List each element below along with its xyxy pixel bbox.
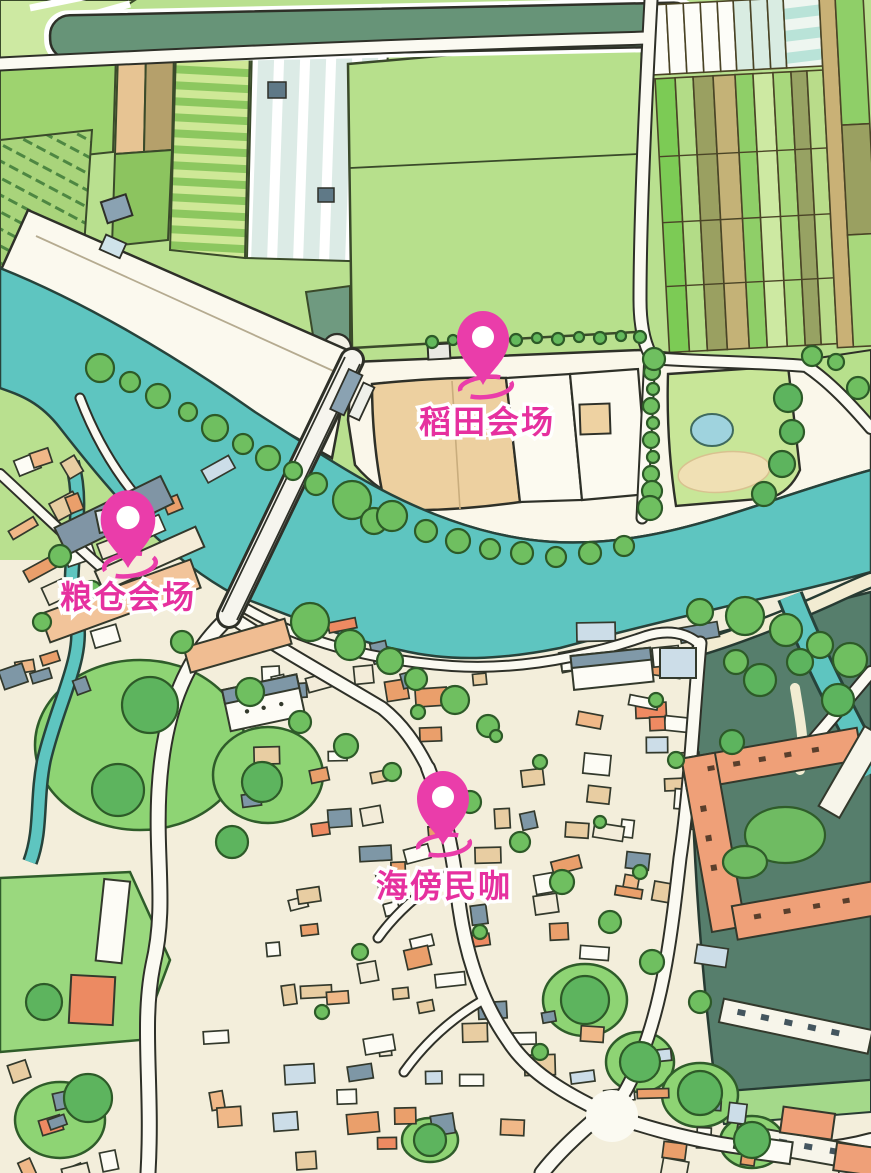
illustrated-map-canvas: 稻田会场 粮仓会场 海傍民咖 xyxy=(0,0,871,1173)
marker-label-seaside-cafe: 海傍民咖 xyxy=(376,867,512,905)
marker-label-granary-venue: 粮仓会场 xyxy=(60,578,196,616)
marker-label-rice-field-venue: 稻田会场 xyxy=(419,403,555,441)
road-plaza xyxy=(586,1090,638,1142)
farmland-east-strips xyxy=(649,0,871,357)
map-stage: 稻田会场 粮仓会场 海傍民咖 xyxy=(0,0,871,1173)
